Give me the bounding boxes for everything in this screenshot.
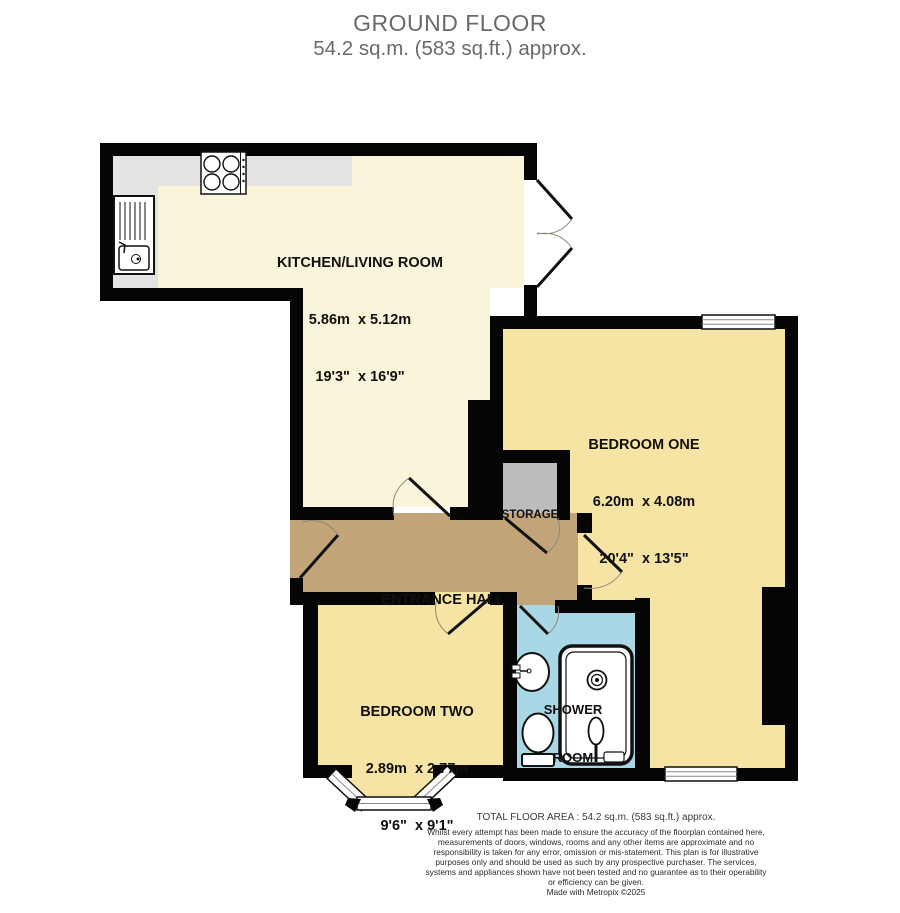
floor-area: 54.2 sq.m. (583 sq.ft.) approx. xyxy=(0,37,900,61)
window-icon xyxy=(665,767,737,781)
plan-title: GROUND FLOOR 54.2 sq.m. (583 sq.ft.) app… xyxy=(0,10,900,61)
room-name-line1: SHOWER xyxy=(523,702,623,718)
french-doors-icon xyxy=(537,180,572,287)
floor-name: GROUND FLOOR xyxy=(0,10,900,37)
storage-label: STORAGE xyxy=(480,483,580,548)
room-name: KITCHEN/LIVING ROOM xyxy=(210,254,510,273)
floorplan-canvas: GROUND FLOOR 54.2 sq.m. (583 sq.ft.) app… xyxy=(0,0,900,913)
room-dims-imperial: 19'3" x 16'9" xyxy=(210,368,510,387)
room-name: ENTRANCE HALL xyxy=(343,591,543,610)
entrance-door-icon xyxy=(300,521,338,578)
room-name-line2: ROOM xyxy=(523,750,623,766)
total-floor-area: TOTAL FLOOR AREA : 54.2 sq.m. (583 sq.ft… xyxy=(421,811,771,824)
room-name: BEDROOM ONE xyxy=(494,436,794,455)
room-dims-metric: 2.89m x 2.77m xyxy=(267,760,567,779)
room-name: BEDROOM TWO xyxy=(267,703,567,722)
room-dims-metric: 5.86m x 5.12m xyxy=(210,311,510,330)
kitchen-living-label: KITCHEN/LIVING ROOM 5.86m x 5.12m 19'3" … xyxy=(210,216,510,425)
disclaimer-text: Whilst every attempt has been made to en… xyxy=(421,827,771,887)
window-icon xyxy=(702,315,775,329)
room-name: STORAGE xyxy=(480,509,580,522)
sink-icon xyxy=(114,196,154,274)
footer: TOTAL FLOOR AREA : 54.2 sq.m. (583 sq.ft… xyxy=(421,811,771,897)
entrance-hall-label: ENTRANCE HALL xyxy=(343,553,543,648)
hob-icon xyxy=(201,152,246,194)
shower-room-label: SHOWER ROOM xyxy=(523,670,623,798)
metropix-credit: Made with Metropix ©2025 xyxy=(421,887,771,897)
living-room-door-icon xyxy=(393,478,450,516)
